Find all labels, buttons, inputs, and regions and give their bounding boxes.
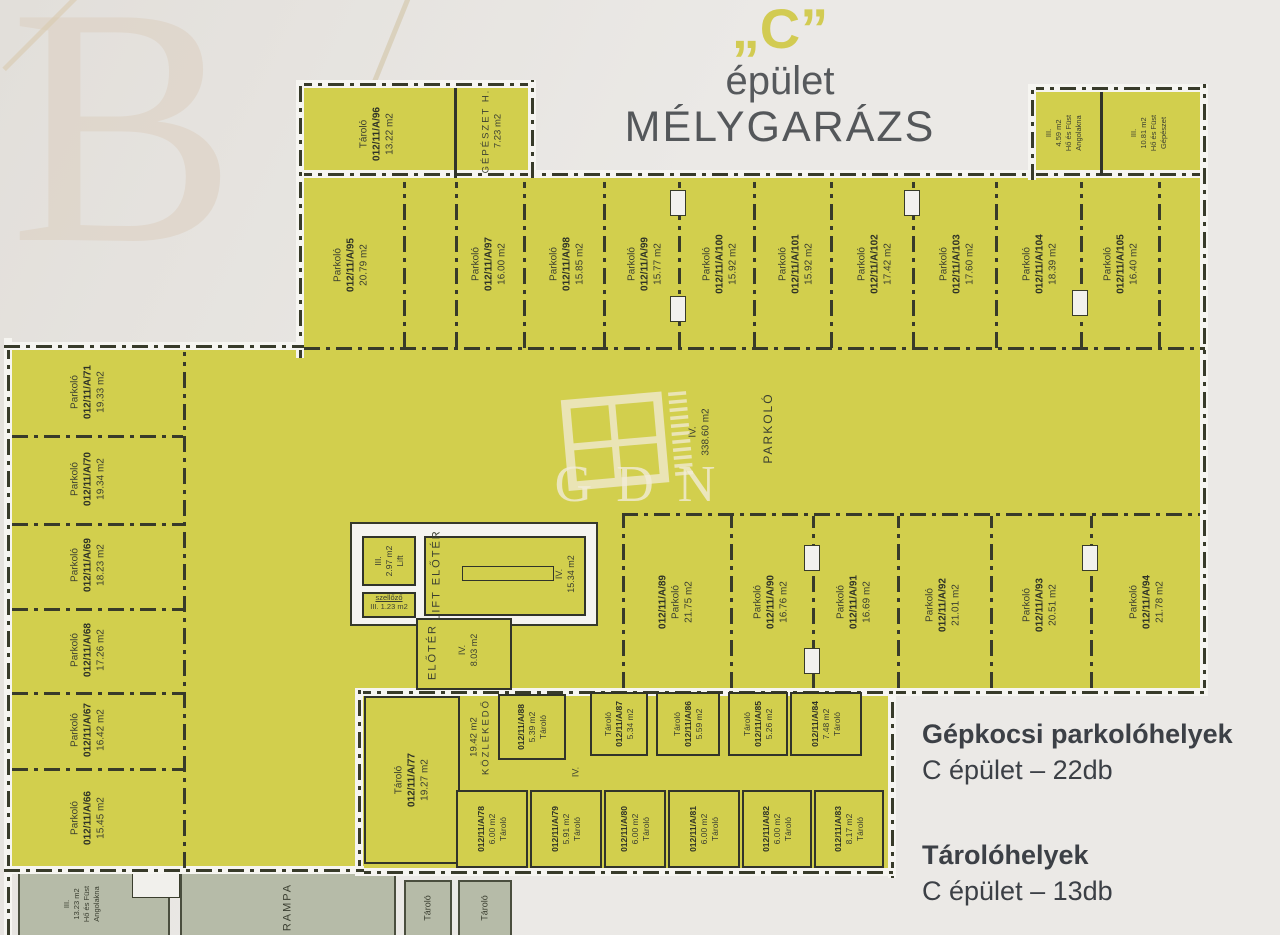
room-area: 19.33 m2 — [95, 371, 107, 413]
ramp-label: RAMPA — [282, 883, 295, 931]
column-marker — [1072, 290, 1088, 316]
gdn-watermark-text: GDN — [552, 455, 742, 514]
parking-divider — [990, 516, 993, 688]
wall — [1028, 84, 1208, 92]
wall — [355, 868, 896, 876]
szellozo-label: szellőző III. 1.23 m2 — [362, 593, 416, 612]
room-storage-88: 012/11/A/88 5.39 m2 Tároló — [498, 694, 566, 760]
room-area: 20.51 m2 — [1047, 584, 1059, 626]
room-name: Angolakna — [1074, 115, 1083, 150]
room-parking-101: Parkoló 012/11/A/101 15.92 m2 — [777, 234, 814, 294]
room-type: Parkoló — [1021, 588, 1033, 622]
room-area: 17.26 m2 — [95, 629, 107, 671]
room-id: 012/11/A/102 — [869, 234, 881, 294]
summary-block: Gépkocsi parkolóhelyek C épület – 22db T… — [922, 716, 1233, 910]
room-parking-91: Parkoló 012/11/A/91 16.69 m2 — [835, 575, 872, 629]
room-id: 012/11/A/66 — [82, 791, 94, 845]
room-parking-105: Parkoló 012/11/A/105 16.40 m2 — [1102, 234, 1139, 294]
room-parking-71: Parkoló 012/11/A/71 19.33 m2 — [69, 365, 106, 419]
parking-divider — [753, 182, 756, 348]
room-id: 012/11/A/68 — [82, 623, 94, 677]
room-area: 18.39 m2 — [1047, 243, 1059, 285]
column-marker — [670, 190, 686, 216]
room-type: Tároló — [498, 817, 508, 841]
wall — [296, 170, 1208, 178]
parking-divider — [1158, 182, 1161, 348]
room-storage-77: Tároló 012/11/A/77 19.27 m2 — [364, 696, 460, 864]
room-parking-66: Parkoló 012/11/A/66 15.45 m2 — [69, 791, 106, 845]
room-id: 012/11/A/84 — [810, 701, 820, 747]
room-area: 15.77 m2 — [652, 243, 664, 285]
room-storage-80: 012/11/A/80 6.00 m2 Tároló — [604, 790, 666, 868]
room-type: Parkoló — [470, 247, 482, 281]
wall — [890, 688, 1208, 696]
room-area: 16.69 m2 — [861, 581, 873, 623]
title-melygarazs: MÉLYGARÁZS — [600, 103, 960, 152]
column-marker — [804, 545, 820, 571]
room-id: 012/11/A/92 — [937, 578, 949, 632]
room-type: Tároló — [393, 766, 405, 794]
room-name: Hő és Füst — [1150, 115, 1159, 151]
room-type: Parkoló — [856, 247, 868, 281]
room-id: 012/11/A/77 — [406, 753, 418, 807]
room-storage-82: 012/11/A/82 6.00 m2 Tároló — [742, 790, 812, 868]
room-storage-78: 012/11/A/78 6.00 m2 Tároló — [456, 790, 528, 868]
room-id: 012/11/A/86 — [683, 701, 693, 747]
parking-divider — [830, 182, 833, 348]
room-id: 012/11/A/85 — [753, 701, 763, 747]
room-area: 21.01 m2 — [950, 584, 962, 626]
room-area: 5.59 m2 — [694, 709, 704, 740]
room-gepeszet: GÉPÉSZET H. 7.23 m2 — [480, 89, 503, 174]
room-type: Parkoló — [752, 585, 764, 619]
room-name: Hő és Füst — [1065, 115, 1074, 151]
room-type: Parkoló — [777, 247, 789, 281]
room-type: Parkoló — [548, 247, 560, 281]
room-type: Tároló — [742, 712, 752, 736]
room-id: 012/11/A/89 — [657, 575, 669, 629]
room-parking-94: Parkoló 012/11/A/94 21.78 m2 — [1128, 575, 1165, 629]
room-type: Parkoló — [332, 248, 344, 282]
room-area: 19.27 m2 — [419, 759, 431, 801]
room-parking-89: 012/11/A/89 Parkoló 21.75 m2 — [657, 575, 694, 629]
parking-divider — [12, 768, 183, 771]
room-parking-92: Parkoló 012/11/A/92 21.01 m2 — [924, 578, 961, 632]
level-num: III. — [1130, 129, 1139, 137]
level-num: III. — [63, 900, 72, 908]
room-storage-96: Tároló 012/11/A/96 13.22 m2 — [358, 107, 395, 161]
room-storage-84: 012/11/A/84 7.48 m2 Tároló — [790, 692, 862, 756]
room-parking-69: Parkoló 012/11/A/69 18.23 m2 — [69, 538, 106, 592]
level-num: IV. — [571, 767, 582, 777]
room-parking-93: Parkoló 012/11/A/93 20.51 m2 — [1021, 578, 1058, 632]
room-name: Angolakna — [92, 886, 101, 921]
room-area: 15.85 m2 — [574, 243, 586, 285]
room-storage-79: 012/11/A/79 5.91 m2 Tároló — [530, 790, 602, 868]
room-type: Tároló — [641, 817, 651, 841]
level-num: IV. — [457, 645, 468, 655]
storage-summary-title: Tárolóhelyek — [922, 837, 1233, 873]
room-area: 15.92 m2 — [727, 243, 739, 285]
room-type: Parkoló — [670, 585, 682, 619]
room-id: 012/11/A/96 — [371, 107, 383, 161]
parking-divider — [622, 516, 625, 688]
room-area: 21.78 m2 — [1154, 581, 1166, 623]
room-parking-103: Parkoló 012/11/A/103 17.60 m2 — [938, 234, 975, 294]
room-area: 21.75 m2 — [683, 581, 695, 623]
room-area: III. 1.23 m2 — [362, 602, 416, 611]
parking-divider — [603, 182, 606, 348]
column-marker — [670, 296, 686, 322]
room-area: 6.00 m2 — [487, 814, 497, 845]
room-area: 8.17 m2 — [844, 814, 854, 845]
room-area: 20.79 m2 — [358, 244, 370, 286]
wall — [1200, 84, 1208, 696]
room-type: Parkoló — [1128, 585, 1140, 619]
room-parking-98: Parkoló 012/11/A/98 15.85 m2 — [548, 237, 585, 291]
room-id: 012/11/A/97 — [483, 237, 495, 291]
room-area: 4.59 m2 — [1055, 119, 1064, 146]
room-parking-70: Parkoló 012/11/A/70 19.34 m2 — [69, 452, 106, 506]
room-id: 012/11/A/105 — [1115, 234, 1127, 294]
room-id: 012/11/A/69 — [82, 538, 94, 592]
room-id: 012/11/A/101 — [790, 234, 802, 294]
parking-divider — [995, 182, 998, 348]
room-type: Parkoló — [1102, 247, 1114, 281]
room-storage-81: 012/11/A/81 6.00 m2 Tároló — [668, 790, 740, 868]
gray-storage-2-label: Tároló — [480, 895, 491, 921]
room-parking-100: Parkoló 012/11/A/100 15.92 m2 — [701, 234, 738, 294]
room-area: 6.00 m2 — [699, 814, 709, 845]
parking-divider — [403, 182, 406, 348]
wall — [296, 80, 536, 88]
photo-stripe — [369, 0, 411, 89]
central-parking-name: PARKOLÓ — [761, 392, 775, 463]
room-id: 012/11/A/70 — [82, 452, 94, 506]
room-parking-97: Parkoló 012/11/A/97 16.00 m2 — [470, 237, 507, 291]
room-name: LIFT ELŐTÉR — [431, 529, 444, 620]
room-area: 5.34 m2 — [625, 709, 635, 740]
room-type: Parkoló — [938, 247, 950, 281]
parking-divider — [12, 523, 183, 526]
room-id: 012/11/A/100 — [714, 234, 726, 294]
parking-summary-count: C épület – 22db — [922, 752, 1233, 788]
column-marker — [1082, 545, 1098, 571]
parking-divider — [455, 182, 458, 348]
room-type: Parkoló — [69, 713, 81, 747]
parking-divider — [183, 352, 186, 868]
room-id: 012/11/A/88 — [516, 704, 526, 750]
room-area: 5.91 m2 — [561, 814, 571, 845]
room-id: 012/11/A/78 — [476, 806, 486, 852]
room-id: 012/11/A/87 — [614, 701, 624, 747]
parking-divider — [12, 608, 183, 611]
eloter-size: IV. 8.03 m2 — [457, 634, 479, 667]
level-num: III. — [373, 556, 383, 565]
room-area: 13.22 m2 — [384, 113, 396, 155]
room-area: 15.34 m2 — [566, 555, 577, 593]
column-marker — [904, 190, 920, 216]
room-type: Tároló — [710, 817, 720, 841]
room-id: 012/11/A/99 — [639, 237, 651, 291]
room-id: 012/11/A/103 — [951, 234, 963, 294]
parking-divider — [304, 347, 1205, 350]
wall — [4, 338, 12, 935]
room-type: Parkoló — [1021, 247, 1033, 281]
room-id: 012/11/A/83 — [833, 806, 843, 852]
room-area: 6.00 m2 — [630, 814, 640, 845]
room-parking-90: Parkoló 012/11/A/90 16.76 m2 — [752, 575, 789, 629]
level-num: III. — [1045, 129, 1054, 137]
room-name: GÉPÉSZET H. — [480, 89, 491, 174]
room-name: Hő és Füst — [83, 886, 92, 922]
storage-summary-count: C épület – 13db — [922, 873, 1233, 909]
room-id: 012/11/A/79 — [550, 806, 560, 852]
room-id: 012/11/A/81 — [688, 806, 698, 852]
room-parking-99: Parkoló 012/11/A/99 15.77 m2 — [626, 237, 663, 291]
room-area: 19.34 m2 — [95, 458, 107, 500]
hf-bottom-label: III. 13.23 m2 Hő és Füst Angolakna — [63, 886, 101, 922]
room-name: szellőző — [362, 593, 416, 602]
room-name: RAMPA — [282, 883, 295, 931]
room-area: 2.97 m2 — [384, 546, 394, 577]
room-type: Tároló — [672, 712, 682, 736]
room-area: 18.23 m2 — [95, 544, 107, 586]
room-area: 17.60 m2 — [964, 243, 976, 285]
eloter-name: ELŐTÉR — [427, 624, 440, 680]
room-name: ELŐTÉR — [427, 624, 440, 680]
title-block: „C” épület MÉLYGARÁZS — [600, 0, 960, 152]
floorplan-photo: B „C” épület MÉLYGARÁZS — [0, 0, 1280, 935]
room-name: Gépészet — [1159, 117, 1168, 149]
room-area: 16.42 m2 — [95, 709, 107, 751]
room-area: 16.40 m2 — [1128, 243, 1140, 285]
title-epulet: épület — [600, 59, 960, 103]
parking-divider — [1080, 182, 1083, 348]
room-id: 012/11/A/80 — [619, 806, 629, 852]
room-type: Parkoló — [69, 375, 81, 409]
room-type: Tároló — [603, 712, 613, 736]
room-type: Tároló — [832, 712, 842, 736]
wall — [1100, 92, 1103, 175]
room-type: Parkoló — [924, 588, 936, 622]
parking-divider — [12, 435, 183, 438]
room-parking-102: Parkoló 012/11/A/102 17.42 m2 — [856, 234, 893, 294]
room-storage-86: Tároló 012/11/A/86 5.59 m2 — [656, 692, 720, 756]
room-type: Parkoló — [835, 585, 847, 619]
building-letter: „C” — [600, 0, 960, 59]
room-area: 17.42 m2 — [882, 243, 894, 285]
floor-right — [895, 350, 1205, 690]
lift-eloter-size: IV. 15.34 m2 — [554, 555, 576, 593]
room-area: 16.76 m2 — [778, 581, 790, 623]
parking-divider — [730, 516, 733, 688]
room-area: 15.45 m2 — [95, 797, 107, 839]
room-area: 7.23 m2 — [493, 114, 504, 148]
room-type: Tároló — [358, 120, 370, 148]
room-name: PARKOLÓ — [761, 392, 775, 463]
room-id: 012/11/A/67 — [82, 703, 94, 757]
room-type: Parkoló — [69, 801, 81, 835]
room-area: 19.42 m2 — [468, 717, 479, 757]
room-id: 012/11/A/90 — [765, 575, 777, 629]
room-id: 012/11/A/82 — [761, 806, 771, 852]
corridor-num: IV. — [571, 767, 582, 777]
room-storage-83: 012/11/A/83 8.17 m2 Tároló — [814, 790, 884, 868]
room-name: Lift — [395, 555, 405, 566]
room-id: 012/11/A/93 — [1034, 578, 1046, 632]
room-storage-85: Tároló 012/11/A/85 5.26 m2 — [728, 692, 788, 756]
room-area: 338.60 m2 — [701, 408, 713, 455]
wall — [355, 688, 363, 876]
room-area: 16.00 m2 — [496, 243, 508, 285]
parking-divider — [523, 182, 526, 348]
room-area: 7.48 m2 — [821, 709, 831, 740]
room-parking-67: Parkoló 012/11/A/67 16.42 m2 — [69, 703, 106, 757]
room-type: Tároló — [783, 817, 793, 841]
wall — [528, 80, 536, 178]
room-type: Tároló — [480, 895, 491, 921]
room-id: 012/11/A/94 — [1141, 575, 1153, 629]
room-area: 15.92 m2 — [803, 243, 815, 285]
room-type: Parkoló — [69, 462, 81, 496]
wall — [1028, 84, 1036, 180]
room-type: Parkoló — [701, 247, 713, 281]
wall — [888, 688, 896, 878]
room-storage-87: Tároló 012/11/A/87 5.34 m2 — [590, 692, 648, 756]
kozlekedo-label: 19.42 m2 KÖZLEKEDŐ — [468, 699, 491, 775]
room-area: 6.00 m2 — [772, 814, 782, 845]
room-id: 012/11/A/98 — [561, 237, 573, 291]
corner-watermark-letter: B — [10, 0, 237, 321]
room-type: Tároló — [423, 895, 434, 921]
parking-summary-title: Gépkocsi parkolóhelyek — [922, 716, 1233, 752]
wall — [296, 80, 304, 358]
room-parking-104: Parkoló 012/11/A/104 18.39 m2 — [1021, 234, 1058, 294]
room-type: Tároló — [572, 817, 582, 841]
parking-divider — [897, 516, 900, 688]
room-parking-68: Parkoló 012/11/A/68 17.26 m2 — [69, 623, 106, 677]
gray-storage-1-label: Tároló — [423, 895, 434, 921]
stair-run — [462, 566, 554, 581]
room-id: 012/11/A/104 — [1034, 234, 1046, 294]
room-area: 5.39 m2 — [527, 712, 537, 743]
room-type: Parkoló — [69, 633, 81, 667]
room-area: 8.03 m2 — [469, 634, 480, 667]
lift-label: III. 2.97 m2 Lift — [373, 546, 405, 577]
parking-divider — [1090, 516, 1093, 688]
room-type: Parkoló — [626, 247, 638, 281]
room-type: Parkoló — [69, 548, 81, 582]
room-area: 5.26 m2 — [764, 709, 774, 740]
level-num: IV. — [554, 569, 565, 579]
room-id: 012/11/A/91 — [848, 575, 860, 629]
column-marker — [804, 648, 820, 674]
room-area: 10.81 m2 — [1140, 117, 1149, 148]
room-name: KÖZLEKEDŐ — [481, 699, 492, 775]
wall — [4, 342, 304, 350]
room-area: 13.23 m2 — [73, 888, 82, 919]
parking-divider — [12, 692, 183, 695]
room-hf-small: III. 4.59 m2 Hő és Füst Angolakna — [1045, 115, 1083, 151]
wall — [454, 88, 457, 178]
room-id: 012/11/A/71 — [82, 365, 94, 419]
room-hf-large: III. 10.81 m2 Hő és Füst Gépészet — [1130, 115, 1168, 151]
room-type: Tároló — [855, 817, 865, 841]
lift-eloter-name: LIFT ELŐTÉR — [431, 529, 444, 620]
room-parking-95: Parkoló 012/11/A/95 20.79 m2 — [332, 238, 369, 292]
room-type: Tároló — [538, 715, 548, 739]
room-id: 012/11/A/95 — [345, 238, 357, 292]
